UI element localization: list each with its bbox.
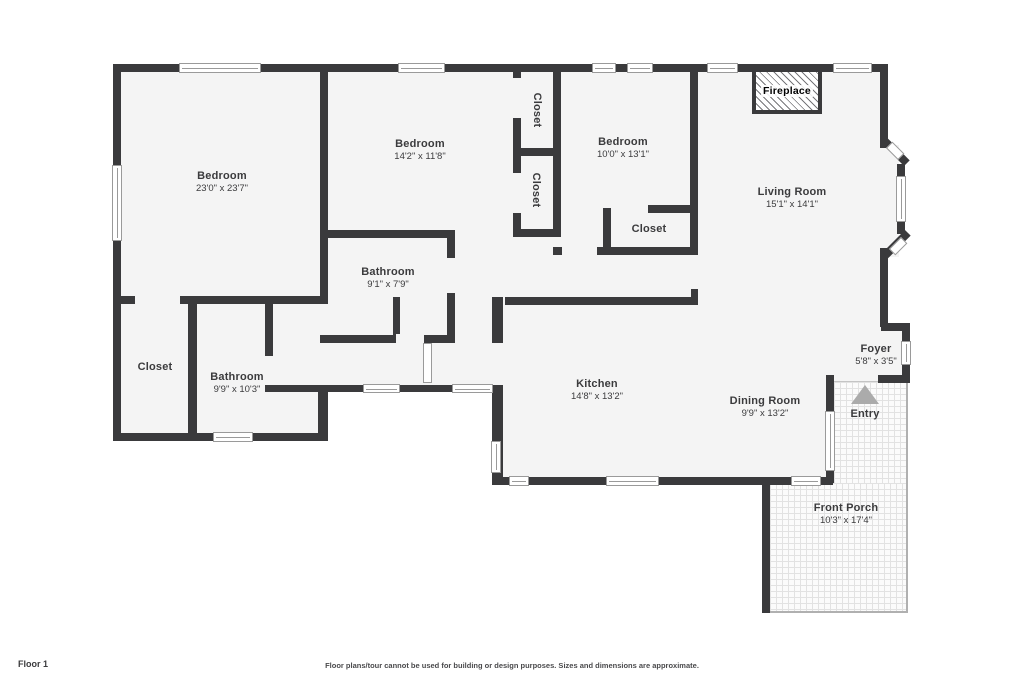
window: [112, 165, 122, 241]
wall: [113, 64, 121, 441]
door-leaf: [423, 343, 432, 383]
wall: [328, 230, 455, 238]
fireplace: Fireplace: [752, 68, 822, 114]
window: [213, 432, 253, 442]
floor-area: [328, 304, 505, 392]
wall: [690, 64, 698, 255]
disclaimer-text: Floor plans/tour cannot be used for buil…: [325, 661, 699, 670]
room-label-kitchen: Kitchen 14'8" x 13'2": [571, 378, 623, 402]
room-label-bathroom-hall: Bathroom 9'1" x 7'9": [361, 266, 415, 290]
room-label-foyer: Foyer 5'8" x 3'5": [855, 343, 897, 367]
room-label-dining-room: Dining Room 9'9" x 13'2": [730, 395, 801, 419]
room-label-living-room: Living Room 15'1" x 14'1": [758, 186, 827, 210]
room-label-bedroom-middle: Bedroom 14'2" x 11'8": [394, 138, 445, 162]
wall: [318, 392, 328, 441]
wall: [505, 297, 698, 305]
door-opening: [396, 334, 424, 344]
wall: [265, 304, 273, 356]
room-label-closet-master: Closet: [138, 361, 173, 373]
window: [791, 476, 821, 486]
room-label-bathroom-master: Bathroom 9'9" x 10'3": [210, 371, 264, 395]
door-opening: [612, 204, 648, 214]
floor-area: [492, 304, 881, 485]
entry-arrow-icon: [851, 385, 879, 404]
wall: [320, 64, 328, 304]
window: [627, 63, 653, 73]
room-label-bedroom-right: Bedroom 10'0" x 13'1": [597, 136, 649, 160]
window: [398, 63, 445, 73]
door-opening: [135, 295, 180, 305]
window: [363, 384, 400, 393]
window: [707, 63, 738, 73]
window: [491, 441, 501, 473]
wall: [880, 64, 888, 148]
window: [833, 63, 872, 73]
room-label-closet-hall-top: Closet: [531, 93, 543, 128]
wall: [762, 477, 770, 613]
wall: [492, 477, 833, 485]
entry-label: Entry: [850, 408, 879, 420]
wall: [492, 297, 503, 343]
room-label-closet-hall-bottom: Closet: [530, 173, 542, 208]
wall: [513, 148, 561, 156]
bay-window: [896, 176, 906, 222]
wall: [513, 229, 561, 237]
door-opening: [512, 78, 522, 118]
window: [592, 63, 616, 73]
room-label-bedroom-master: Bedroom 23'0" x 23'7": [196, 170, 248, 194]
window: [179, 63, 261, 73]
floor-selector-label: Floor 1: [18, 659, 48, 669]
door-opening: [562, 246, 597, 256]
door-opening: [446, 258, 456, 293]
wall: [880, 248, 888, 327]
door-opening: [512, 173, 522, 213]
window: [901, 341, 911, 365]
window: [606, 476, 659, 486]
window: [825, 411, 835, 471]
room-label-front-porch: Front Porch 10'3" x 17'4": [814, 502, 879, 526]
floor-plan: Fireplace Bedroom 23'0" x 23'7" Bedroom …: [0, 0, 1024, 683]
room-label-closet-bedroom-right: Closet: [632, 223, 667, 235]
wall: [320, 335, 455, 343]
wall: [188, 296, 197, 441]
window: [509, 476, 529, 486]
window: [452, 384, 493, 393]
fireplace-label: Fireplace: [761, 85, 813, 97]
wall: [691, 289, 698, 299]
wall: [603, 208, 611, 255]
